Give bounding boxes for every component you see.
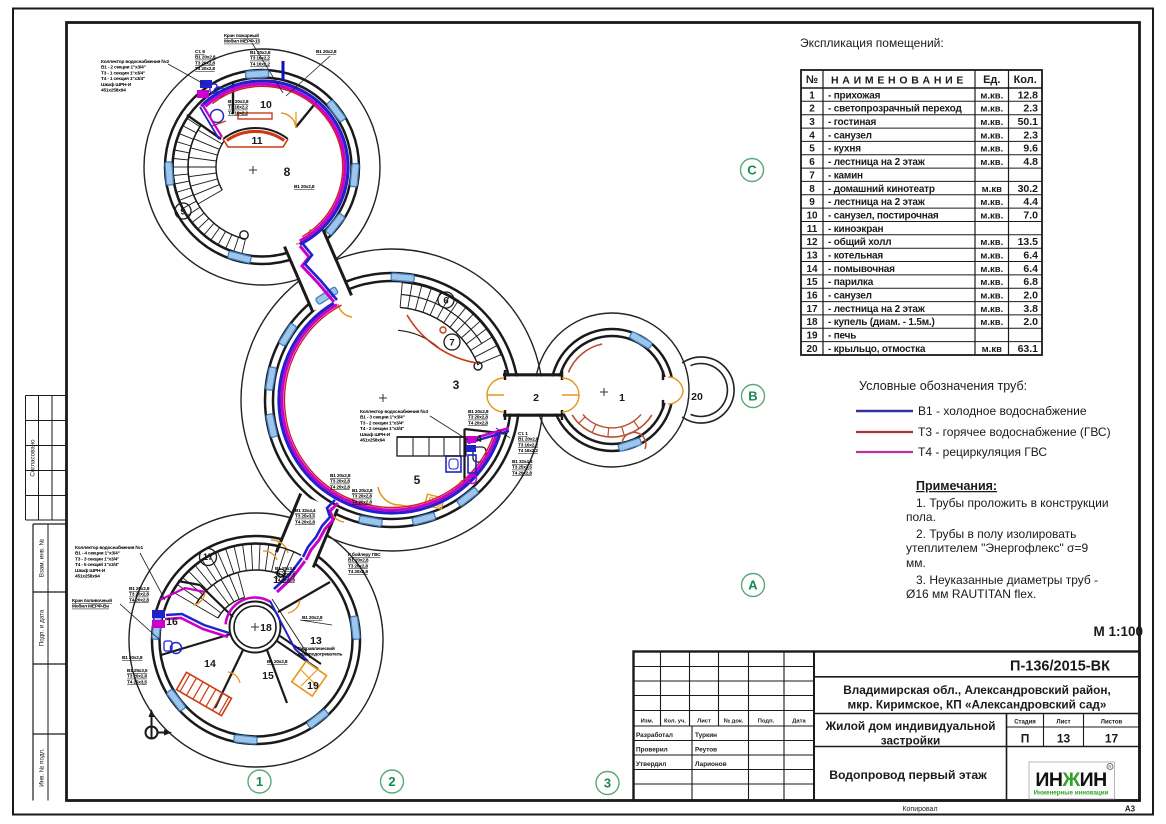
svg-text:16: 16	[806, 291, 818, 302]
svg-text:М 1:100: М 1:100	[1093, 624, 1143, 639]
svg-text:2: 2	[388, 774, 395, 789]
svg-text:Листов: Листов	[1101, 720, 1123, 726]
svg-text:Т3 25х3,5: Т3 25х3,5	[512, 465, 532, 471]
svg-text:В1 20х2,8: В1 20х2,8	[228, 99, 249, 105]
svg-text:В1 20х2,8: В1 20х2,8	[195, 55, 216, 61]
svg-text:- лестница на 2 этаж: - лестница на 2 этаж	[828, 304, 926, 315]
svg-text:Утвердил: Утвердил	[636, 761, 666, 768]
svg-text:Туркин: Туркин	[695, 732, 717, 739]
svg-text:В1 32х4,4: В1 32х4,4	[512, 459, 533, 465]
svg-text:Мобил МЕРФ-15: Мобил МЕРФ-15	[224, 38, 261, 45]
svg-text:Ст. 1: Ст. 1	[518, 431, 528, 437]
svg-text:Владимирская обл., Александров: Владимирская обл., Александровский район…	[843, 683, 1111, 697]
svg-text:В1 32х4,4: В1 32х4,4	[295, 508, 316, 514]
svg-text:В1 20х2,8: В1 20х2,8	[250, 50, 271, 56]
svg-text:Ед.: Ед.	[983, 74, 1000, 86]
svg-text:7: 7	[449, 337, 454, 348]
svg-text:В1 20х2,8: В1 20х2,8	[352, 488, 373, 494]
svg-text:Т4 - 5 секций 1"х3/4": Т4 - 5 секций 1"х3/4"	[75, 561, 119, 568]
svg-text:4: 4	[476, 434, 482, 445]
svg-text:2.0: 2.0	[1023, 316, 1038, 328]
svg-text:Копировал: Копировал	[902, 806, 937, 813]
svg-text:Т3 20х2,8: Т3 20х2,8	[195, 60, 215, 66]
svg-text:13.5: 13.5	[1018, 236, 1039, 248]
svg-text:10: 10	[260, 99, 272, 111]
svg-text:Т4 20х2,8: Т4 20х2,8	[512, 470, 532, 476]
svg-text:Т3 20х2,8: Т3 20х2,8	[129, 592, 149, 598]
svg-text:- гостиная: - гостиная	[828, 117, 877, 128]
svg-text:17: 17	[203, 552, 213, 562]
svg-text:Коллектор водоснабжения №1: Коллектор водоснабжения №1	[75, 544, 143, 551]
svg-text:7.0: 7.0	[1023, 209, 1038, 221]
svg-text:Изм.: Изм.	[641, 719, 654, 725]
svg-text:- домашний кинотеатр: - домашний кинотеатр	[828, 184, 935, 195]
svg-text:13: 13	[1057, 732, 1071, 746]
svg-text:С: С	[747, 163, 757, 178]
svg-text:3: 3	[604, 776, 611, 791]
svg-text:Т3 20х2,8: Т3 20х2,8	[348, 563, 368, 569]
svg-text:5: 5	[414, 473, 421, 487]
svg-text:м.кв.: м.кв.	[980, 197, 1003, 208]
svg-text:- санузел: - санузел	[828, 291, 872, 302]
svg-text:- светопрозрачный переход: - светопрозрачный переход	[828, 104, 962, 115]
svg-text:В1 20х2,8: В1 20х2,8	[122, 655, 143, 661]
svg-text:Т4 20х2,8: Т4 20х2,8	[352, 499, 372, 505]
svg-text:15: 15	[806, 277, 818, 288]
svg-text:Т4 - рециркуляция ГВС: Т4 - рециркуляция ГВС	[918, 445, 1047, 459]
svg-text:2.3: 2.3	[1023, 129, 1038, 141]
svg-text:9: 9	[809, 197, 815, 208]
svg-text:Кол.: Кол.	[1014, 74, 1037, 86]
svg-text:- санузел: - санузел	[828, 130, 872, 141]
svg-text:Разработал: Разработал	[636, 731, 673, 739]
svg-text:Т3 25х3,5: Т3 25х3,5	[295, 514, 315, 520]
svg-text:м.кв.: м.кв.	[980, 210, 1003, 221]
svg-text:Условные обозначения труб:: Условные обозначения труб:	[859, 379, 1027, 393]
svg-text:- парилка: - парилка	[828, 277, 874, 288]
svg-text:№: №	[806, 74, 818, 86]
svg-text:451х258х94: 451х258х94	[101, 88, 126, 94]
svg-text:- помывочная: - помывочная	[828, 264, 895, 275]
svg-text:Ст. 8: Ст. 8	[195, 49, 205, 55]
svg-text:3.8: 3.8	[1023, 303, 1038, 315]
svg-text:17: 17	[806, 304, 818, 315]
svg-text:14: 14	[204, 658, 216, 670]
svg-text:Т3 20х2,8: Т3 20х2,8	[330, 479, 350, 485]
svg-text:451х258х94: 451х258х94	[360, 438, 385, 444]
svg-text:В1 20х2,8: В1 20х2,8	[316, 49, 337, 55]
svg-text:Т4 20х2,8: Т4 20х2,8	[295, 519, 315, 525]
svg-text:Ø16 мм RAUTITAN flex.: Ø16 мм RAUTITAN flex.	[906, 587, 1036, 601]
svg-text:Т4 - 2 секции 1"х3/4": Т4 - 2 секции 1"х3/4"	[360, 426, 404, 432]
svg-text:16: 16	[166, 616, 178, 628]
svg-text:К бойлеру ГВС: К бойлеру ГВС	[348, 551, 381, 558]
svg-text:14: 14	[806, 264, 818, 275]
svg-text:Т4 - 1 секция 1"х3/4": Т4 - 1 секция 1"х3/4"	[101, 76, 145, 82]
svg-text:6: 6	[443, 295, 448, 306]
svg-text:1: 1	[809, 90, 815, 101]
svg-text:- камин: - камин	[828, 170, 863, 181]
svg-text:Т4 20х2,8: Т4 20х2,8	[330, 484, 350, 490]
svg-text:Ларионов: Ларионов	[695, 761, 727, 768]
svg-text:В1 20х2,8: В1 20х2,8	[468, 409, 489, 415]
svg-text:Т3 20х2,8: Т3 20х2,8	[352, 494, 372, 500]
svg-text:утеплителем "Энергофлекс" σ=9: утеплителем "Энергофлекс" σ=9	[906, 541, 1088, 555]
svg-text:Лист: Лист	[697, 719, 711, 725]
svg-text:6: 6	[809, 157, 815, 168]
svg-text:м.кв: м.кв	[982, 184, 1002, 195]
svg-text:20: 20	[806, 344, 818, 355]
svg-text:2: 2	[533, 392, 539, 404]
svg-text:15: 15	[262, 670, 274, 682]
svg-text:Взам. инв. №: Взам. инв. №	[39, 538, 46, 577]
svg-text:3: 3	[809, 117, 815, 128]
svg-text:Подп. и дата: Подп. и дата	[39, 609, 46, 646]
svg-text:13: 13	[806, 251, 818, 262]
svg-text:Стадия: Стадия	[1014, 720, 1036, 726]
svg-text:м.кв.: м.кв.	[980, 251, 1003, 262]
svg-text:4: 4	[809, 130, 815, 141]
svg-text:- лестница на 2 этаж: - лестница на 2 этаж	[828, 157, 926, 168]
svg-text:Инв. № подл.: Инв. № подл.	[39, 748, 46, 787]
svg-text:В1 20х2,8: В1 20х2,8	[518, 437, 539, 443]
svg-text:13: 13	[310, 635, 322, 647]
svg-text:В1 20х2,8: В1 20х2,8	[129, 586, 150, 592]
svg-text:1. Трубы проложить в конструкц: 1. Трубы проложить в конструкции	[916, 496, 1109, 510]
svg-text:- лестница на 2 этаж: - лестница на 2 этаж	[828, 197, 926, 208]
svg-text:6.8: 6.8	[1023, 276, 1038, 288]
svg-text:2.0: 2.0	[1023, 290, 1038, 302]
svg-text:4.8: 4.8	[1023, 156, 1038, 168]
svg-text:м.кв: м.кв	[982, 344, 1002, 355]
svg-text:В1 - 4 секции 1"х3/4": В1 - 4 секции 1"х3/4"	[75, 551, 120, 557]
svg-text:В1 25х3,5: В1 25х3,5	[275, 566, 296, 572]
svg-text:Т4 20х2,8: Т4 20х2,8	[129, 597, 149, 603]
svg-text:В1 25х3,5: В1 25х3,5	[127, 668, 148, 674]
svg-text:11: 11	[807, 224, 818, 235]
svg-text:5: 5	[809, 144, 815, 155]
svg-text:18: 18	[806, 317, 818, 328]
svg-text:12: 12	[273, 574, 285, 586]
svg-text:Т3 - 3 секции 1"х3/4": Т3 - 3 секции 1"х3/4"	[75, 556, 119, 562]
svg-text:18: 18	[260, 622, 272, 634]
svg-text:м.кв.: м.кв.	[980, 157, 1003, 168]
svg-text:м.кв.: м.кв.	[980, 117, 1003, 128]
svg-text:30.2: 30.2	[1018, 183, 1039, 195]
svg-text:Т3 20х2,8: Т3 20х2,8	[127, 674, 147, 680]
svg-text:8: 8	[809, 184, 815, 195]
svg-text:1: 1	[256, 774, 263, 789]
svg-text:ИНЖИН: ИНЖИН	[1035, 769, 1106, 791]
svg-text:Т3 16х2,2: Т3 16х2,2	[518, 442, 538, 448]
svg-text:м.кв.: м.кв.	[980, 317, 1003, 328]
svg-text:м.кв.: м.кв.	[980, 291, 1003, 302]
svg-text:20: 20	[691, 391, 703, 403]
svg-text:В1 20х2,8: В1 20х2,8	[348, 558, 369, 564]
svg-text:м.кв.: м.кв.	[980, 304, 1003, 315]
svg-text:Инженерные инновации: Инженерные инновации	[1034, 790, 1109, 797]
svg-text:Т3 16х2,2: Т3 16х2,2	[228, 105, 248, 111]
svg-text:Т4 16х2,2: Т4 16х2,2	[518, 448, 538, 454]
svg-text:7: 7	[809, 170, 815, 181]
svg-text:Т4 25х3,5: Т4 25х3,5	[127, 679, 147, 685]
svg-text:Водопровод первый этаж: Водопровод первый этаж	[829, 768, 987, 782]
svg-text:Жилой дом индивидуальной: Жилой дом индивидуальной	[824, 719, 995, 733]
svg-text:Мобил МЕРФ-Вн: Мобил МЕРФ-Вн	[72, 603, 109, 610]
svg-text:17: 17	[1105, 732, 1119, 746]
svg-text:Шкаф ШРН-И: Шкаф ШРН-И	[101, 81, 132, 88]
svg-text:Т3 20х2,8: Т3 20х2,8	[468, 415, 488, 421]
svg-text:2. Трубы в полу изолировать: 2. Трубы в полу изолировать	[916, 527, 1076, 541]
svg-text:Лист: Лист	[1056, 720, 1070, 726]
svg-text:63.1: 63.1	[1018, 343, 1039, 355]
svg-text:- киноэкран: - киноэкран	[828, 224, 883, 235]
svg-text:пола.: пола.	[906, 510, 936, 524]
svg-text:- общий холл: - общий холл	[828, 236, 891, 248]
svg-text:м.кв.: м.кв.	[980, 264, 1003, 275]
svg-text:1: 1	[619, 392, 625, 404]
svg-text:м.кв.: м.кв.	[980, 277, 1003, 288]
svg-text:Т4 20х2,8: Т4 20х2,8	[468, 420, 488, 426]
svg-text:2.3: 2.3	[1023, 103, 1038, 115]
svg-text:Н А И М Е Н О В А Н И Е: Н А И М Е Н О В А Н И Е	[831, 75, 964, 87]
svg-text:м.кв.: м.кв.	[980, 144, 1003, 155]
svg-text:Подп.: Подп.	[758, 719, 775, 725]
svg-text:Коллектор водоснабжения №3: Коллектор водоснабжения №3	[360, 408, 428, 415]
svg-text:В: В	[748, 389, 757, 404]
svg-text:9: 9	[180, 206, 185, 217]
svg-text:3: 3	[453, 378, 460, 392]
svg-text:В1 - 2 секции 1"х3/4": В1 - 2 секции 1"х3/4"	[101, 65, 146, 71]
svg-text:П: П	[1021, 732, 1030, 746]
svg-text:3. Неуказанные диаметры труб -: 3. Неуказанные диаметры труб -	[916, 573, 1098, 587]
svg-text:Дата: Дата	[792, 719, 806, 725]
svg-text:2: 2	[809, 104, 815, 115]
svg-text:водоподогреватель: водоподогреватель	[298, 653, 342, 658]
svg-text:- купель (диам. - 1.5м.): - купель (диам. - 1.5м.)	[828, 317, 935, 328]
svg-text:4.4: 4.4	[1023, 196, 1038, 208]
svg-text:Т4 20х2,8: Т4 20х2,8	[195, 66, 215, 72]
svg-text:Экспликация помещений:: Экспликация помещений:	[800, 36, 944, 50]
svg-text:Шкаф ШРН-И: Шкаф ШРН-И	[75, 567, 106, 574]
svg-text:Согласовано: Согласовано	[30, 439, 37, 477]
svg-text:А: А	[748, 578, 758, 593]
svg-text:- крыльцо, отмостка: - крыльцо, отмостка	[828, 344, 926, 355]
svg-text:Проверил: Проверил	[636, 747, 668, 754]
svg-text:Т3 - горячее водоснабжение (ГВ: Т3 - горячее водоснабжение (ГВС)	[918, 425, 1111, 439]
svg-text:8: 8	[284, 165, 291, 179]
svg-text:50.1: 50.1	[1018, 116, 1039, 128]
svg-text:9.6: 9.6	[1023, 143, 1038, 155]
svg-text:- кухня: - кухня	[828, 144, 861, 155]
svg-text:11: 11	[251, 135, 262, 147]
svg-text:Т4 16х2,2: Т4 16х2,2	[228, 110, 248, 116]
svg-text:Коллектор водоснабжения №2: Коллектор водоснабжения №2	[101, 58, 169, 65]
svg-text:П-136/2015-ВК: П-136/2015-ВК	[1010, 659, 1110, 675]
svg-text:Примечания:: Примечания:	[916, 479, 997, 493]
svg-text:Кран поливочный: Кран поливочный	[72, 597, 112, 604]
svg-text:мм.: мм.	[906, 556, 926, 570]
svg-text:10: 10	[806, 210, 818, 221]
svg-text:- котельная: - котельная	[828, 251, 883, 262]
svg-text:А3: А3	[1125, 805, 1136, 814]
svg-text:- санузел, постирочная: - санузел, постирочная	[828, 210, 939, 221]
svg-text:12.8: 12.8	[1018, 89, 1039, 101]
svg-text:№ док.: № док.	[724, 719, 744, 725]
svg-text:Т4 16х2,2: Т4 16х2,2	[250, 61, 270, 67]
svg-text:12: 12	[806, 237, 818, 248]
svg-text:мкр. Киримское, КП «Александро: мкр. Киримское, КП «Александровский сад»	[847, 698, 1106, 712]
svg-text:Шкаф ШРН-И: Шкаф ШРН-И	[360, 431, 391, 438]
svg-text:- печь: - печь	[828, 331, 856, 342]
svg-text:Кол. уч.: Кол. уч.	[664, 719, 686, 725]
svg-text:м.кв.: м.кв.	[980, 130, 1003, 141]
svg-text:Т3 - 2 секции 1"х3/4": Т3 - 2 секции 1"х3/4"	[360, 420, 404, 426]
svg-text:В1 20х2,8: В1 20х2,8	[267, 659, 288, 665]
svg-text:В1 - 3 секции 1"х3/4": В1 - 3 секции 1"х3/4"	[360, 415, 405, 421]
svg-text:Т4 20х2,8: Т4 20х2,8	[348, 569, 368, 575]
svg-text:6.4: 6.4	[1023, 263, 1038, 275]
svg-text:м.кв.: м.кв.	[980, 90, 1003, 101]
svg-text:Т3 - 1 секция 1"х3/4": Т3 - 1 секция 1"х3/4"	[101, 70, 145, 76]
svg-text:застройки: застройки	[881, 734, 940, 748]
svg-text:В1 20х2,8: В1 20х2,8	[330, 473, 351, 479]
svg-text:451х258х94: 451х258х94	[75, 574, 100, 580]
svg-text:19: 19	[307, 680, 319, 692]
svg-text:В1 20х2,8: В1 20х2,8	[302, 615, 323, 621]
svg-text:В1 - холодное водоснабжение: В1 - холодное водоснабжение	[918, 404, 1087, 418]
svg-text:- прихожая: - прихожая	[828, 90, 881, 101]
svg-text:м.кв.: м.кв.	[980, 104, 1003, 115]
svg-text:м.кв.: м.кв.	[980, 237, 1003, 248]
svg-text:Кран пожарный: Кран пожарный	[224, 32, 259, 39]
svg-text:Реутов: Реутов	[695, 747, 717, 754]
svg-text:6.4: 6.4	[1023, 250, 1038, 262]
svg-text:В1 20х2,8: В1 20х2,8	[294, 184, 315, 190]
svg-text:19: 19	[806, 331, 818, 342]
